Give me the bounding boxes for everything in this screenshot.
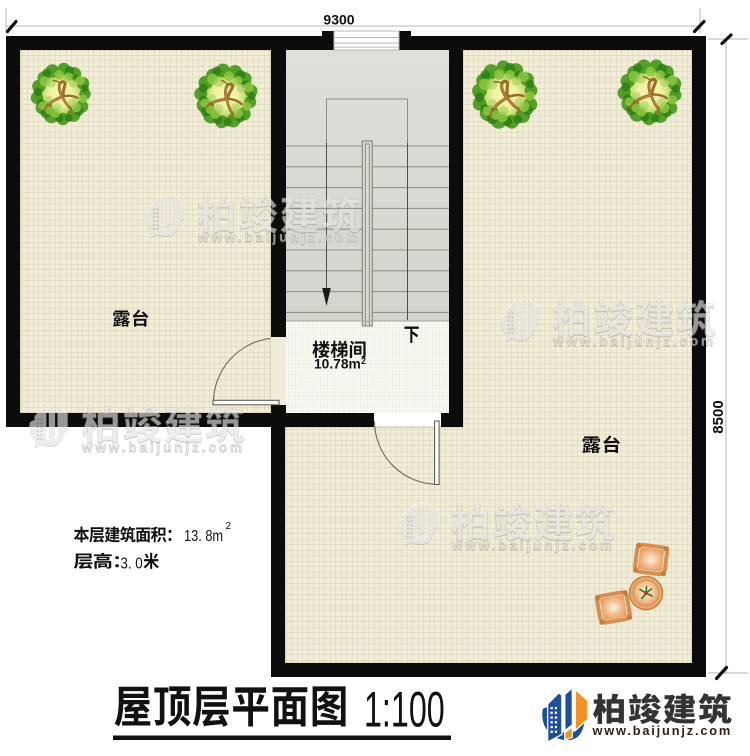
svg-text:3. 0: 3. 0 (121, 555, 143, 572)
svg-text:www.baijunjz.com: www.baijunjz.com (451, 538, 614, 553)
svg-text:www.baijunjz.com: www.baijunjz.com (552, 334, 715, 349)
svg-text:www.baijunjz.com: www.baijunjz.com (197, 230, 360, 245)
svg-text:9300: 9300 (323, 12, 354, 28)
svg-text:8500: 8500 (710, 400, 727, 433)
svg-text:www.baijunjz.com: www.baijunjz.com (81, 440, 244, 455)
svg-text:10.78m: 10.78m (314, 357, 361, 372)
svg-text:www.baijunjz.com: www.baijunjz.com (592, 723, 732, 738)
svg-text:2: 2 (361, 356, 366, 366)
svg-text:1:100: 1:100 (364, 681, 445, 737)
svg-text:2: 2 (226, 521, 232, 532)
svg-text:13. 8m: 13. 8m (184, 528, 223, 546)
